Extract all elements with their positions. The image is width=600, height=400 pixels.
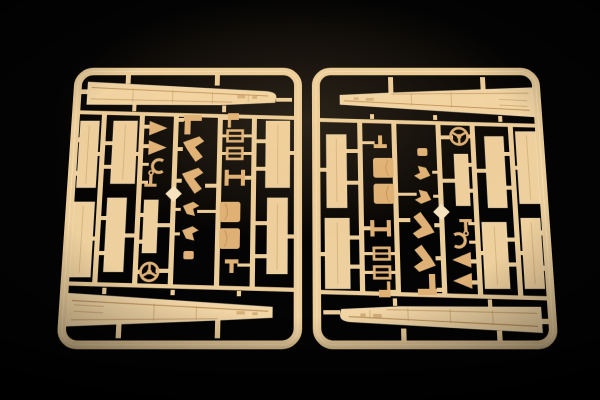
perspective-stage: [0, 9, 600, 400]
sprue-left: [61, 71, 298, 344]
sprue-photo-svg: [0, 9, 600, 400]
sprue-right: [316, 71, 554, 344]
photo-canvas: [0, 0, 600, 400]
